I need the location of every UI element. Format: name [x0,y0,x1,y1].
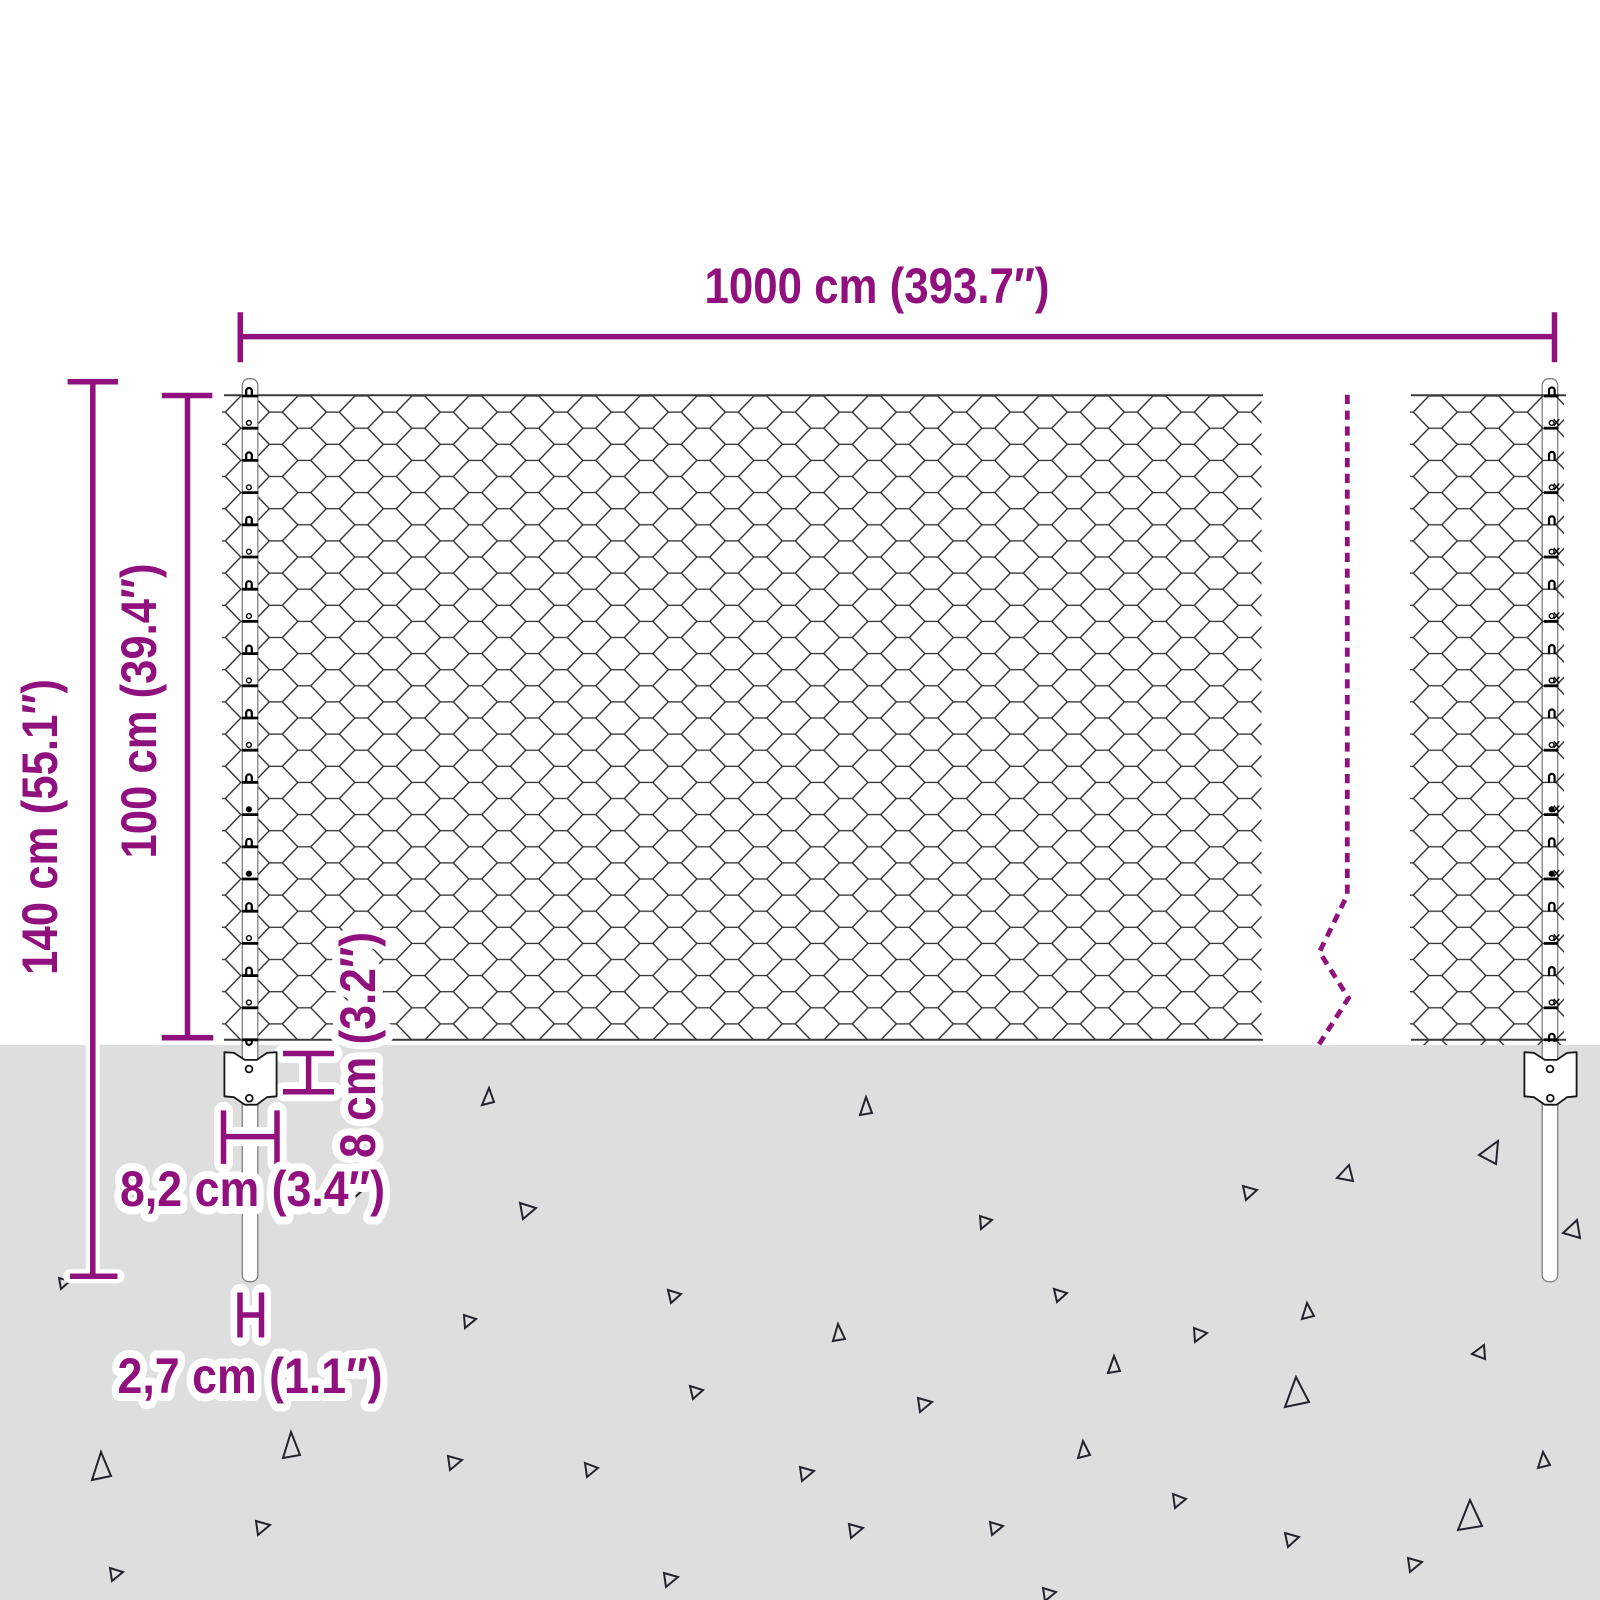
svg-text:8,2 cm (3.4″): 8,2 cm (3.4″) [120,1161,385,1217]
svg-text:1000 cm (393.7″): 1000 cm (393.7″) [705,258,1050,314]
svg-text:140 cm (55.1″): 140 cm (55.1″) [12,679,68,975]
svg-text:2,7 cm (1.1″): 2,7 cm (1.1″) [118,1348,383,1404]
svg-text:100 cm (39.4″): 100 cm (39.4″) [111,564,167,859]
svg-text:8 cm (3.2″): 8 cm (3.2″) [330,932,386,1158]
